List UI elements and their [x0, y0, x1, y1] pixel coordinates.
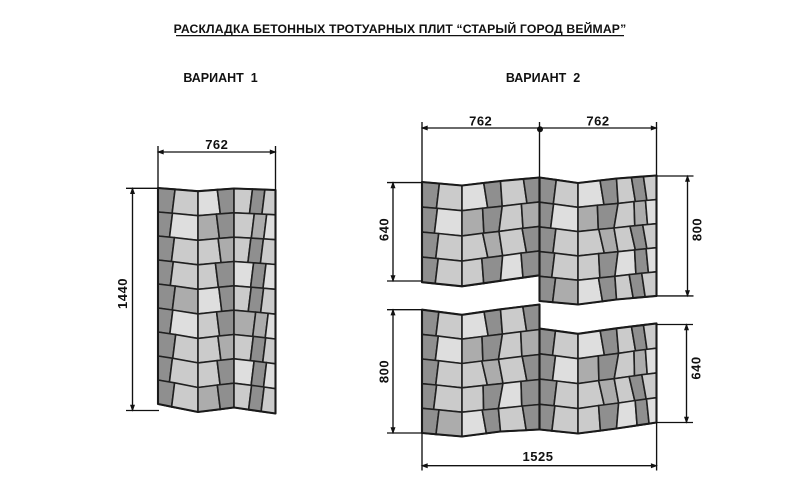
svg-text:1525: 1525	[523, 449, 554, 464]
svg-text:1440: 1440	[115, 278, 130, 309]
svg-text:640: 640	[377, 218, 392, 241]
svg-text:ВАРИАНТ 1: ВАРИАНТ 1	[183, 71, 257, 85]
svg-text:800: 800	[690, 218, 705, 241]
svg-text:762: 762	[469, 114, 492, 129]
svg-text:762: 762	[205, 137, 228, 152]
svg-text:762: 762	[586, 114, 609, 129]
svg-text:РАСКЛАДКА БЕТОННЫХ ТРОТУАРНЫХ: РАСКЛАДКА БЕТОННЫХ ТРОТУАРНЫХ ПЛИТ “СТАР…	[174, 21, 627, 36]
svg-text:ВАРИАНТ 2: ВАРИАНТ 2	[506, 71, 580, 85]
svg-text:640: 640	[689, 356, 704, 379]
svg-text:800: 800	[377, 360, 392, 383]
